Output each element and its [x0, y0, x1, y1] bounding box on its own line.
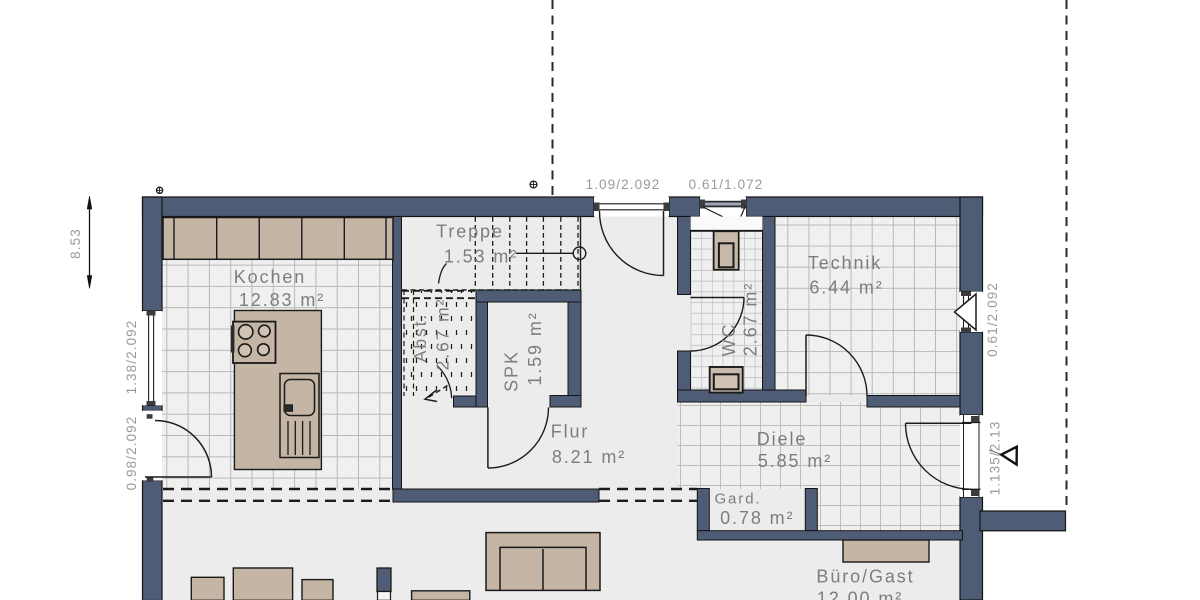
svg-text:Büro/Gast: Büro/Gast	[816, 567, 914, 587]
svg-text:Treppe: Treppe	[436, 222, 504, 242]
svg-text:2.67 m²: 2.67 m²	[433, 298, 453, 371]
svg-text:Diele: Diele	[757, 429, 808, 449]
svg-text:1.09/2.092: 1.09/2.092	[586, 177, 661, 192]
svg-text:Abst.: Abst.	[410, 313, 430, 362]
svg-text:8.21 m²: 8.21 m²	[552, 447, 626, 467]
svg-text:Kochen: Kochen	[234, 267, 306, 287]
svg-text:5.85 m²: 5.85 m²	[758, 451, 832, 471]
svg-text:0.98/2.092: 0.98/2.092	[124, 416, 139, 491]
svg-text:8.53: 8.53	[68, 228, 83, 259]
svg-text:Gard.: Gard.	[714, 491, 761, 508]
svg-text:Flur: Flur	[551, 422, 590, 442]
svg-text:6.44 m²: 6.44 m²	[809, 278, 883, 298]
svg-text:WC: WC	[719, 323, 739, 357]
svg-text:2.67 m²: 2.67 m²	[741, 282, 761, 356]
svg-text:0.61/1.072: 0.61/1.072	[689, 177, 764, 192]
svg-text:Technik: Technik	[808, 253, 882, 273]
svg-text:12.83 m²: 12.83 m²	[239, 290, 325, 310]
svg-text:1.59 m²: 1.59 m²	[525, 311, 545, 385]
svg-text:1.38/2.092: 1.38/2.092	[124, 320, 139, 395]
svg-text:1.135/2.13: 1.135/2.13	[988, 421, 1003, 496]
svg-text:12.00 m²: 12.00 m²	[817, 589, 903, 600]
svg-text:0.61/2.092: 0.61/2.092	[985, 282, 1000, 357]
svg-text:0.78 m²: 0.78 m²	[720, 508, 794, 528]
svg-text:1.53 m²: 1.53 m²	[444, 247, 518, 267]
svg-text:SPK: SPK	[502, 350, 522, 392]
